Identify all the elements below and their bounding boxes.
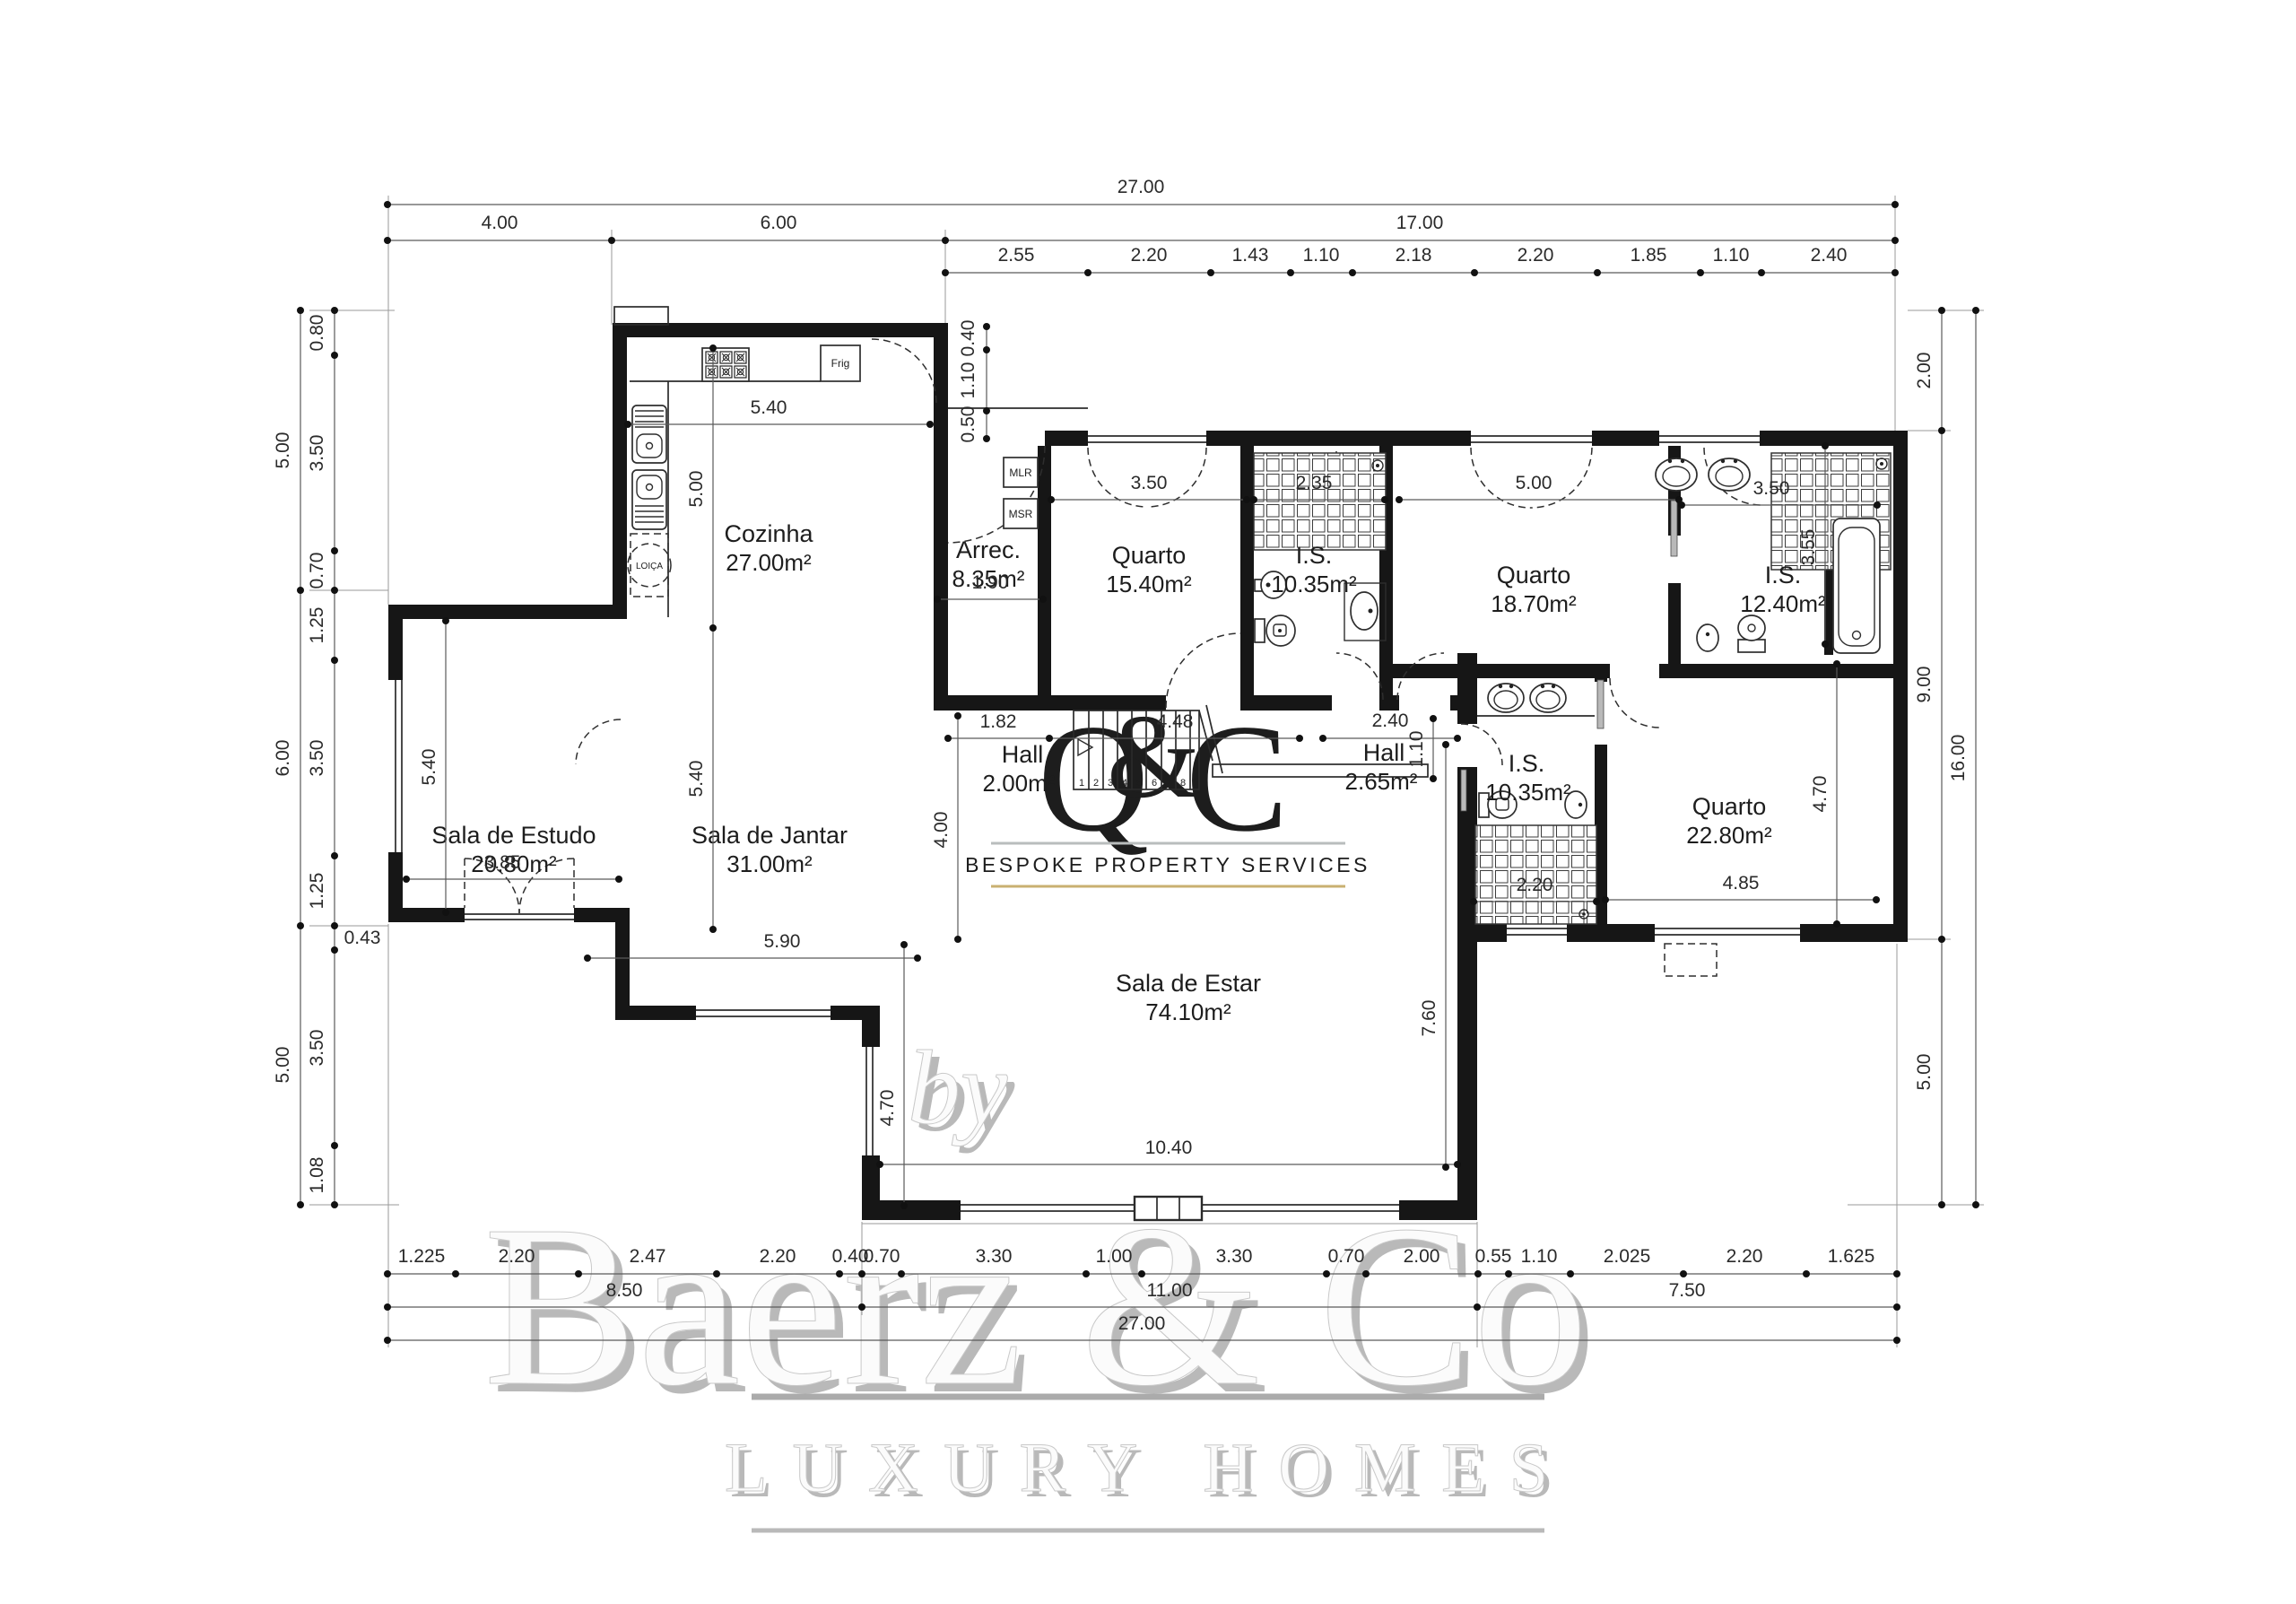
dim-label: 2.025 (1604, 1246, 1651, 1267)
dishwasher-icon: LOIÇA (628, 534, 671, 597)
room-jantar-name: Sala de Jantar (691, 822, 848, 849)
stove-icon (702, 348, 749, 381)
dim-label: 2.47 (630, 1246, 666, 1267)
room-is2-name: I.S. (1765, 562, 1802, 588)
dim-label: 7.50 (1669, 1280, 1706, 1301)
dim-label: 2.20 (1517, 875, 1553, 895)
kitchen-sink-icon (632, 405, 666, 463)
dryer-label: MSR (1009, 508, 1033, 520)
dim-label: 8.50 (606, 1280, 643, 1301)
room-arrec-name: Arrec. (956, 536, 1021, 563)
dim-label: 5.90 (764, 931, 801, 952)
fridge-icon: Frig (821, 345, 860, 381)
dim-label: 1.10 (1406, 731, 1427, 768)
dim-label: 0.70 (307, 553, 327, 589)
stair-step-number: 4 (1122, 778, 1127, 789)
dim-label: 1.82 (980, 711, 1017, 732)
dim-label: 2.20 (1131, 245, 1168, 266)
dim-label: 2.35 (1296, 473, 1333, 493)
dim-label: 2.20 (1726, 1246, 1763, 1267)
room-cozinha-name: Cozinha (724, 520, 813, 547)
dim-label: 1.90 (972, 572, 1009, 593)
dim-label: 5.40 (751, 397, 787, 418)
room-hall1-name: Hall (1002, 741, 1044, 768)
dim-label: 2.20 (760, 1246, 796, 1267)
dim-label: 1.25 (307, 607, 327, 644)
dim-label: 11.00 (1147, 1280, 1193, 1301)
dim-label: 3.50 (1131, 473, 1168, 493)
dim-label: 5.00 (273, 432, 293, 469)
pocket-doors (1461, 501, 1677, 811)
room-quarto2-name: Quarto (1497, 562, 1571, 588)
dim-label: 1.10 (1713, 245, 1750, 266)
dim-label: 3.55 (1798, 529, 1819, 566)
dim-label: 17.00 (1396, 213, 1444, 233)
dim-label: 1.85 (1631, 245, 1667, 266)
dim-label: 2.00 (1404, 1246, 1440, 1267)
dim-label: 1.10 (1303, 245, 1340, 266)
dim-label: 1.225 (398, 1246, 446, 1267)
room-cozinha-area: 27.00m² (726, 549, 812, 576)
stair-step-number: 2 (1093, 778, 1099, 789)
shower-tiles (1254, 453, 1386, 550)
room-quarto1-name: Quarto (1112, 542, 1187, 569)
dim-label: 4.00 (931, 812, 952, 849)
dim-label: 2.00 (1914, 353, 1935, 389)
dim-label: 2.20 (1518, 245, 1554, 266)
dim-label: 1.25 (307, 873, 327, 910)
dim-label: 9.00 (1914, 667, 1935, 703)
room-quarto1-area: 15.40m² (1106, 571, 1192, 597)
dim-label: 5.40 (419, 749, 439, 786)
dim-label: 2.20 (499, 1246, 535, 1267)
room-jantar-area: 31.00m² (726, 850, 813, 877)
dim-label: 1.00 (1096, 1246, 1133, 1267)
fridge-label: Frig (831, 357, 850, 370)
dim-label: 5.00 (1914, 1054, 1935, 1091)
room-is1-name: I.S. (1296, 542, 1333, 569)
dim-label: 2.55 (998, 245, 1035, 266)
dim-label: 6.00 (273, 740, 293, 777)
room-is3-name: I.S. (1509, 750, 1545, 777)
dim-label: 3.50 (307, 740, 327, 777)
room-hall2-area: 2.65m² (1345, 768, 1418, 795)
stair-step-number: 5 (1136, 778, 1142, 789)
dim-label: 4.70 (877, 1090, 898, 1127)
dim-label: 5.00 (686, 471, 707, 508)
room-is2-area: 12.40m² (1740, 590, 1826, 617)
kitchen-sink2-icon (632, 470, 666, 529)
dim-label: 3.50 (1753, 478, 1790, 499)
baerz-watermark: by by Baerz & Co Baerz & Co LUXURY HOMES… (483, 1029, 1596, 1530)
dim-label: 4.48 (1157, 711, 1194, 732)
dim-label: 0.70 (1328, 1246, 1365, 1267)
dim-label: 4.00 (482, 213, 518, 233)
dim-label: 7.60 (1419, 1000, 1439, 1037)
dim-label: 2.18 (1396, 245, 1432, 266)
dim-label: 4.70 (1810, 776, 1831, 813)
dim-label: 3.30 (1216, 1246, 1253, 1267)
dim-label: 6.00 (761, 213, 797, 233)
dim-label: 0.80 (307, 315, 327, 352)
washer-label: MLR (1009, 466, 1032, 479)
baerz-by: by (908, 1029, 1008, 1146)
room-is1-area: 10.35m² (1271, 571, 1357, 597)
room-quarto3-name: Quarto (1692, 793, 1767, 820)
dim-label: 0.40 (958, 320, 978, 357)
stair-step-number: 6 (1152, 778, 1157, 789)
dim-label: 3.85 (484, 852, 521, 873)
dim-label: 1.08 (307, 1157, 327, 1194)
floor-plan-page: Q & C BESPOKE PROPERTY SERVICES by by Ba… (0, 0, 2296, 1604)
room-quarto3-area: 22.80m² (1686, 822, 1772, 849)
stair-step-number: 1 (1079, 778, 1084, 789)
stair-step-number: 8 (1180, 778, 1186, 789)
room-is3-area: 10.35m² (1485, 779, 1571, 806)
dim-label: 16.00 (1948, 735, 1969, 782)
room-estar-name: Sala de Estar (1116, 970, 1261, 997)
dim-label: 0.50 (958, 406, 978, 443)
room-estudo-name: Sala de Estudo (431, 822, 596, 849)
room-estar-area: 74.10m² (1145, 998, 1231, 1025)
dim-label: 0.70 (864, 1246, 900, 1267)
dim-label: 2.40 (1811, 245, 1848, 266)
dim-label: 1.10 (958, 362, 978, 399)
dim-label: 1.43 (1232, 245, 1269, 266)
dim-label: 4.85 (1723, 873, 1760, 894)
floor-plan-drawing: Q & C BESPOKE PROPERTY SERVICES by by Ba… (0, 0, 2296, 1604)
dim-label: 5.00 (1516, 473, 1552, 493)
stair-step-number: 3 (1108, 778, 1113, 789)
dim-label: 0.43 (344, 928, 381, 948)
dim-label: 1.10 (1521, 1246, 1558, 1267)
dim-label: 1.625 (1828, 1246, 1875, 1267)
room-hall1-area: 2.00m² (983, 770, 1056, 797)
dim-label: 3.50 (307, 435, 327, 472)
dishwasher-label: LOIÇA (636, 562, 663, 571)
room-hall2-name: Hall (1363, 739, 1405, 766)
qc-tagline: BESPOKE PROPERTY SERVICES (965, 853, 1370, 876)
dim-label: 10.40 (1145, 1138, 1193, 1158)
room-quarto2-area: 18.70m² (1491, 590, 1577, 617)
dim-label: 2.40 (1372, 710, 1409, 731)
stair-step-number: 7 (1166, 778, 1171, 789)
dim-label: 5.00 (273, 1047, 293, 1084)
baerz-tagline: LUXURY HOMES (725, 1428, 1573, 1506)
dim-label: 3.50 (307, 1030, 327, 1067)
dim-label: 27.00 (1118, 1313, 1166, 1334)
dim-label: 3.30 (976, 1246, 1013, 1267)
dim-label: 0.55 (1475, 1246, 1512, 1267)
dim-label: 27.00 (1118, 177, 1165, 197)
dim-label: 5.40 (686, 761, 707, 798)
